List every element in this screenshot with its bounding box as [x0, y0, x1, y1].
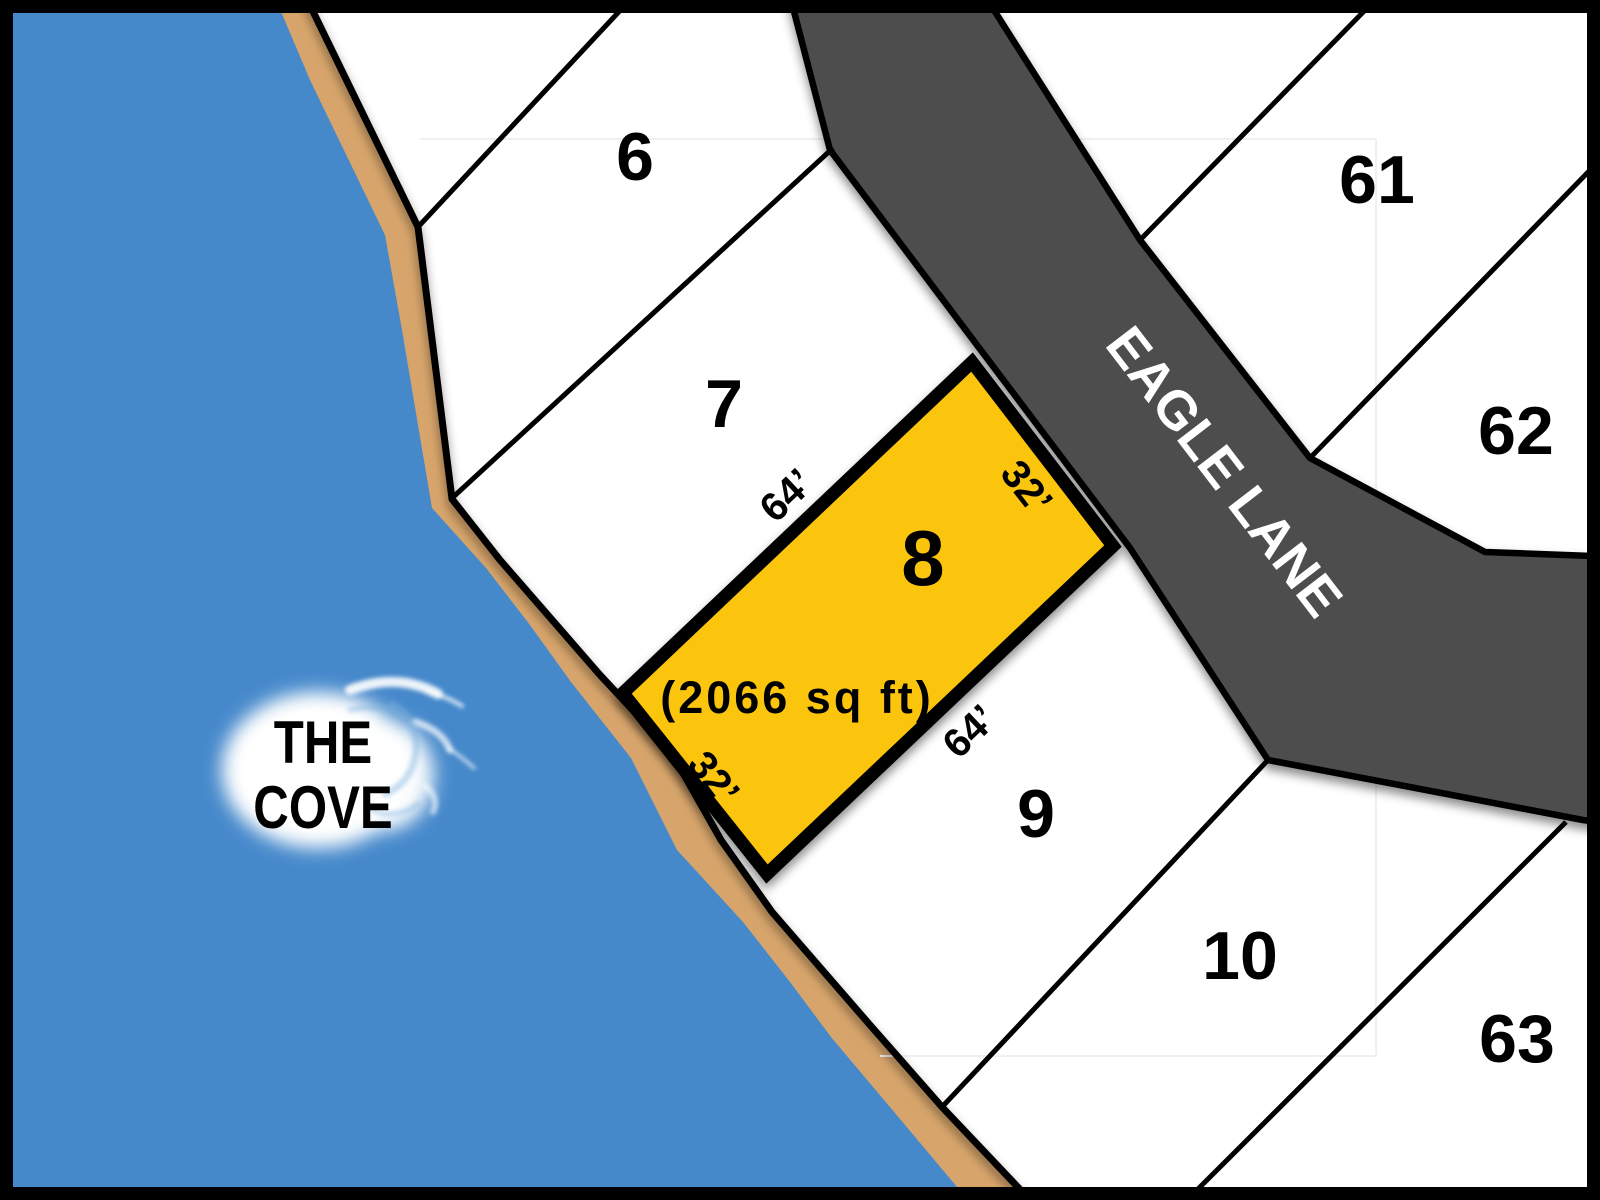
svg-text:6: 6 — [616, 119, 654, 195]
svg-text:8: 8 — [901, 514, 944, 602]
svg-text:10: 10 — [1202, 918, 1278, 994]
svg-text:COVE: COVE — [253, 773, 392, 841]
svg-text:7: 7 — [705, 366, 743, 442]
svg-text:9: 9 — [1017, 776, 1055, 852]
svg-text:61: 61 — [1339, 142, 1415, 218]
svg-text:THE: THE — [274, 708, 372, 776]
svg-text:63: 63 — [1479, 1001, 1555, 1077]
svg-text:(2066 sq ft): (2066 sq ft) — [660, 672, 934, 723]
svg-text:62: 62 — [1478, 393, 1554, 469]
